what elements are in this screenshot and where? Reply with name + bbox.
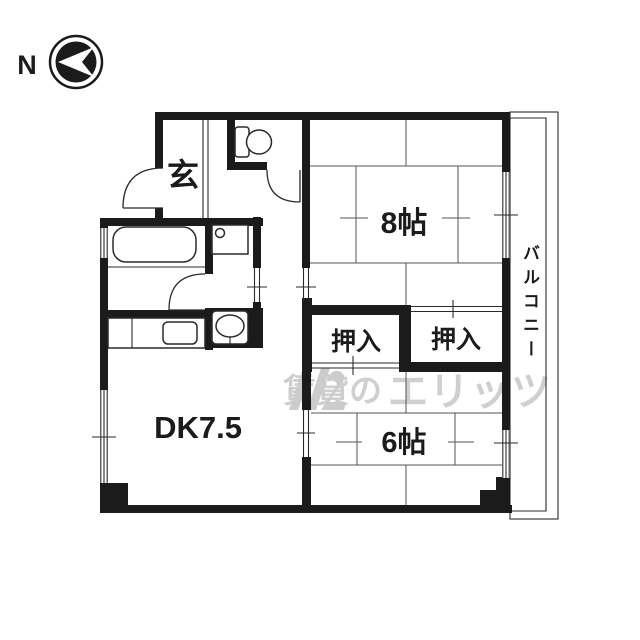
closet-label-right: 押入 (431, 326, 481, 354)
window-8jo-balcony (494, 172, 518, 258)
window-6jo-balcony (494, 430, 518, 478)
room-label-genkan: 玄 (167, 157, 199, 193)
compass: N (17, 36, 102, 88)
bathtub-icon (108, 227, 205, 267)
room-label-8jo: 8帖 (381, 207, 428, 240)
toilet-door-arc (267, 170, 300, 202)
closet-label-left: 押入 (331, 328, 381, 356)
washbasin-icon (212, 311, 248, 344)
kitchen-counter (108, 318, 205, 348)
room-label-dk: DK7.5 (154, 410, 242, 445)
hall-8jo-sliding-door (296, 268, 316, 302)
window-bathroom (100, 228, 108, 258)
dk-6jo-sliding-door (297, 410, 315, 457)
balcony-label: バルコニー (517, 244, 542, 364)
corner-pillar-bottom-right (496, 477, 510, 513)
sliding-doors (203, 120, 502, 457)
kitchen-sink-icon (163, 322, 197, 344)
bathroom-door-arc (169, 274, 205, 310)
window-dk (92, 390, 116, 483)
genkan-step-line (203, 120, 208, 218)
floorplan-page: 賃貸の エリッツ N (0, 0, 640, 640)
floorplan-drawing: N (0, 0, 640, 640)
entrance-door-arc (123, 168, 163, 208)
walls (100, 112, 512, 513)
toilet-icon (235, 127, 272, 157)
washing-machine-pan-icon (212, 225, 248, 254)
washroom-sliding-door (247, 268, 267, 302)
compass-north-label: N (17, 50, 37, 80)
compass-icon (50, 36, 102, 88)
closet-right-fusuma (411, 300, 502, 318)
closet-left-fusuma (312, 356, 399, 375)
room-label-6jo: 6帖 (381, 426, 426, 459)
